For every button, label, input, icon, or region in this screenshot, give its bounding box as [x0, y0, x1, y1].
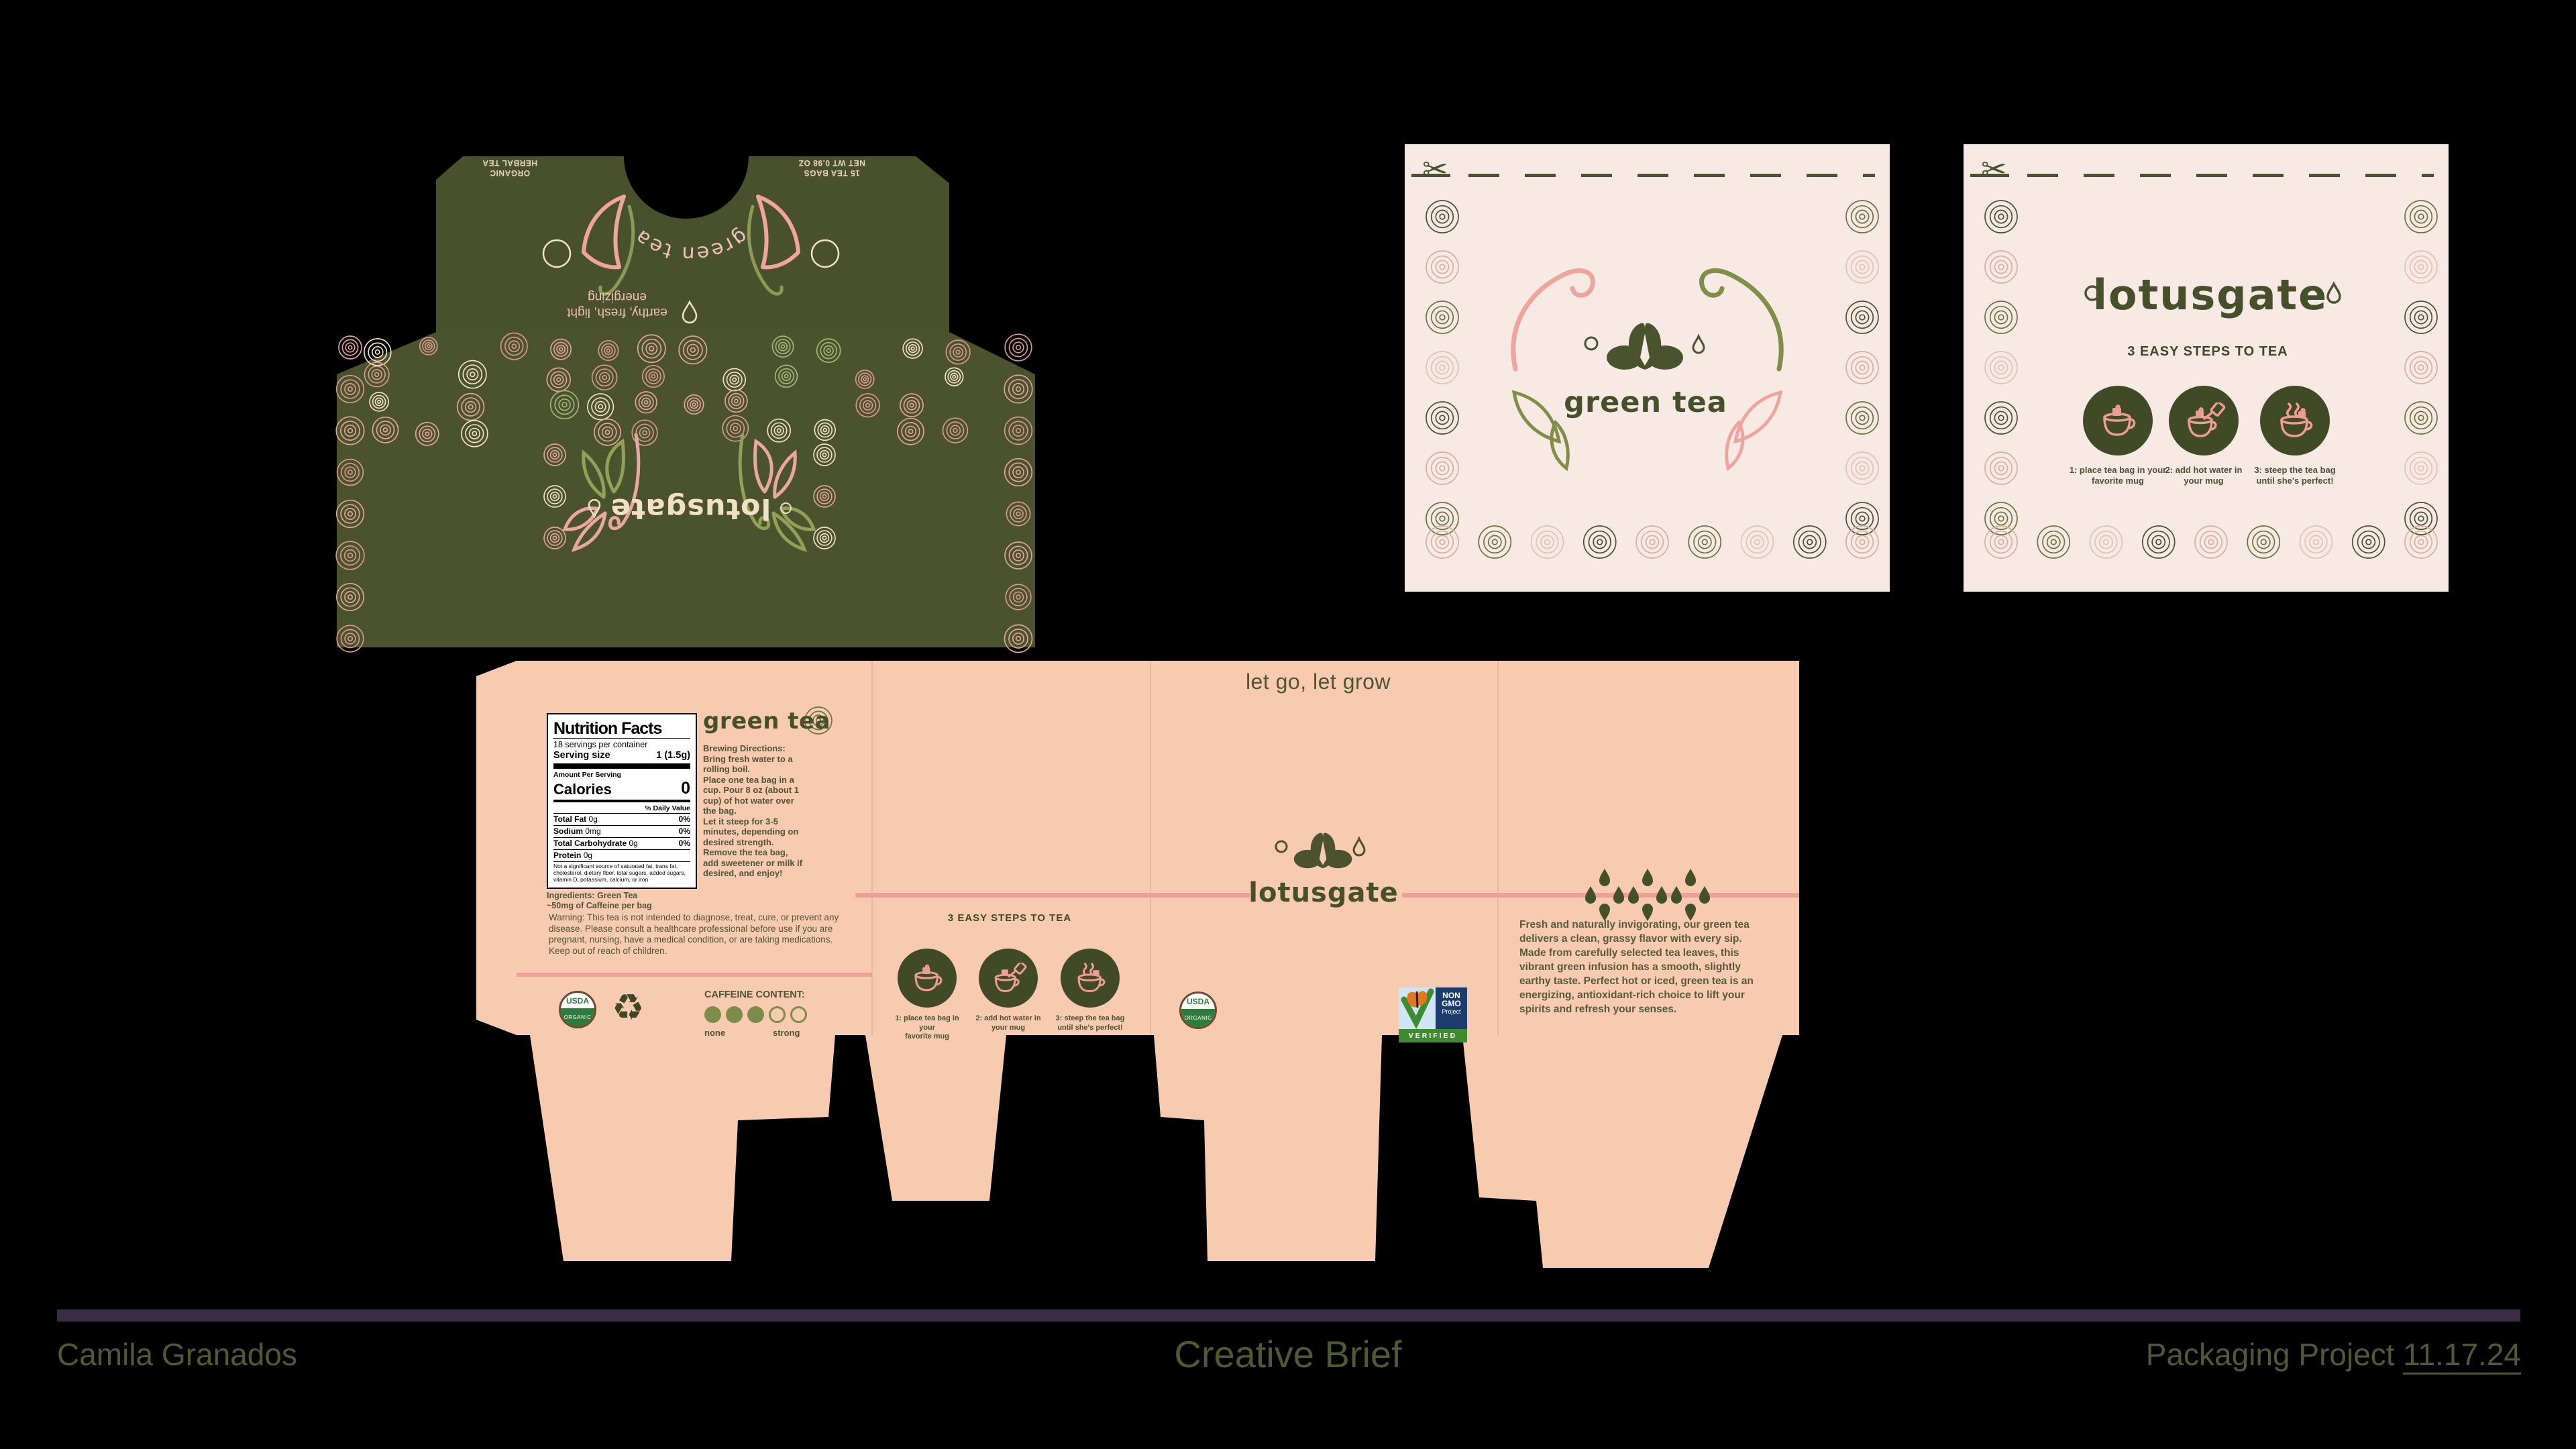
- nf-row-dv: 0%: [679, 814, 690, 824]
- step2-caption: 2: add hot water in your mug: [2153, 465, 2254, 486]
- caffeine-max-label: strong: [773, 1028, 800, 1038]
- back-panel-ornaments: [1964, 144, 2449, 592]
- caffeine-dot: [726, 1006, 743, 1023]
- nf-row-amount: 0g: [629, 839, 637, 848]
- back-panel: ✂ lotusgate 3 EASY STEPS TO TEA: [1964, 144, 2449, 592]
- caffeine-dot: [790, 1006, 807, 1023]
- warning-text: Warning: This tea is not intended to dia…: [549, 912, 841, 957]
- green-box-logo: lotusgate: [610, 492, 771, 525]
- nf-row-amount: 0mg: [585, 826, 600, 836]
- nf-dv-label: % Daily Value: [553, 804, 690, 814]
- caffeine-label: CAFFEINE CONTENT:: [704, 989, 805, 1000]
- bottom-flap-2: [865, 1035, 1006, 1201]
- nf-serving-size-value: 1 (1.5g): [656, 750, 690, 761]
- project-label: Packaging Project 11.17.24: [2146, 1336, 2521, 1373]
- back-panel-logo: lotusgate: [2049, 270, 2371, 319]
- caffeine-meter: [704, 1006, 812, 1026]
- caffeine-dot: [704, 1006, 721, 1023]
- bottom-flap-4: [1462, 1035, 1782, 1268]
- green-swirl: [1701, 270, 1781, 369]
- step3-icon-circle: [2260, 386, 2330, 455]
- droplet-icon: [588, 499, 601, 518]
- cut-line: [1468, 174, 1875, 177]
- bottom-flap-1: [530, 1035, 835, 1261]
- steps-heading: 3 EASY STEPS TO TEA: [902, 912, 1117, 924]
- nf-row-dv: 0%: [679, 839, 690, 849]
- non-gmo-verified-badge: NON GMO Project VERIFIED: [1399, 987, 1467, 1042]
- step3-caption: 3: steep the tea bag until she's perfect…: [2245, 465, 2345, 486]
- nf-footnote: Not a significant source of saturated fa…: [553, 863, 690, 883]
- cut-line: [2027, 174, 2434, 177]
- project-date: 11.17.24: [2403, 1337, 2521, 1375]
- rule-left: [855, 893, 1250, 898]
- peach-brand: green tea: [703, 708, 830, 735]
- nf-row-dv: 0%: [679, 826, 690, 837]
- green-box-logo-row: lotusgate: [569, 488, 810, 529]
- glue-flap: [476, 661, 517, 1035]
- non-gmo-text: Project: [1436, 1008, 1467, 1016]
- organic-label: ORGANIC: [1181, 1009, 1215, 1027]
- front-panel-ornaments: [1405, 144, 1890, 592]
- green-box-flap-right-text: 15 TEA BAGS NET WT 0.98 OZ: [748, 158, 916, 178]
- caffeine-min-label: none: [704, 1028, 725, 1038]
- circle-glyph: [780, 503, 792, 515]
- nf-row-amount: 0g: [588, 814, 597, 824]
- usda-label: USDA: [1181, 994, 1215, 1009]
- green-box-tagline: earthy, fresh, light energizing: [540, 289, 694, 320]
- nutrition-facts-label: Nutrition Facts 18 servings per containe…: [547, 713, 697, 889]
- creative-brief-board: green tea: [0, 0, 2576, 1449]
- brewing-title: Brewing Directions:: [703, 743, 824, 754]
- nf-row-amount: 0g: [584, 851, 592, 860]
- green-dieline-art: green tea: [319, 153, 1057, 663]
- peach-box-dieline: let go, let grow Nutrition Facts 18 serv…: [470, 644, 1811, 1288]
- step2-icon-circle: [2169, 386, 2239, 455]
- slogan: let go, let grow: [1184, 669, 1452, 694]
- recycle-icon: ♻: [612, 989, 644, 1026]
- organic-label: ORGANIC: [561, 1008, 594, 1026]
- front-panel: ✂ green tea: [1405, 144, 1890, 592]
- brewing-body: Bring fresh water to a rolling boil. Pla…: [703, 754, 824, 879]
- peach-logo: lotusgate: [1203, 877, 1444, 908]
- scissors-icon: ✂: [1981, 154, 2007, 184]
- pink-swirl: [1513, 270, 1593, 369]
- usda-organic-badge: USDA ORGANIC: [1179, 991, 1217, 1029]
- rule-right: [1402, 893, 1799, 898]
- caffeine-note: ~50mg of Caffeine per bag: [547, 901, 652, 911]
- step3-caption: 3: steep the tea bag until she's perfect…: [1050, 1014, 1130, 1032]
- nf-amount-label: Amount Per Serving: [553, 771, 690, 779]
- nf-title: Nutrition Facts: [553, 719, 690, 739]
- non-gmo-text: GMO: [1436, 1000, 1467, 1008]
- usda-organic-badge: USDA ORGANIC: [559, 991, 596, 1028]
- usda-label: USDA: [561, 993, 594, 1008]
- steps-heading: 3 EASY STEPS TO TEA: [2074, 344, 2342, 360]
- step1-icon-circle: [2083, 386, 2153, 455]
- scissors-icon: ✂: [1422, 154, 1448, 184]
- divider: [517, 973, 872, 977]
- nf-row-name: Total Fat: [553, 814, 586, 824]
- caffeine-dot: [747, 1006, 764, 1023]
- nf-row-name: Sodium: [553, 826, 583, 836]
- nf-serving-size-label: Serving size: [553, 750, 610, 761]
- step2-caption: 2: add hot water in your mug: [968, 1014, 1049, 1032]
- nf-calories-label: Calories: [553, 781, 612, 798]
- butterfly-leaf-art: [1399, 987, 1436, 1029]
- front-panel-brand: green tea: [1525, 386, 1766, 419]
- nf-servings: 18 servings per container: [553, 740, 690, 750]
- product-description: Fresh and naturally invigorating, our gr…: [1519, 918, 1769, 1016]
- green-box-flap-left-text: ORGANIC HERBAL TEA: [446, 158, 574, 178]
- teacup-pour-icon: [2182, 402, 2226, 439]
- green-box-dieline: green tea: [319, 153, 1057, 663]
- bottom-flap-3: [1154, 1035, 1382, 1261]
- nf-calories-value: 0: [681, 779, 690, 798]
- verified-label: VERIFIED: [1399, 1029, 1467, 1042]
- project-name: Packaging Project: [2146, 1337, 2395, 1372]
- caffeine-dot: [769, 1006, 786, 1023]
- step1-caption: 1: place tea bag in your favorite mug: [887, 1014, 967, 1042]
- step1-icon-circle: [898, 949, 957, 1008]
- teacup-teabag-icon: [2096, 402, 2140, 439]
- step3-icon-circle: [1061, 949, 1120, 1008]
- circle-glyph: [1585, 337, 1597, 350]
- nf-row-name: Protein: [553, 851, 581, 860]
- nf-row-name: Total Carbohydrate: [553, 839, 627, 848]
- droplet-icon: [1693, 336, 1704, 353]
- lotus-logo: [1607, 323, 1683, 370]
- teacup-steam-icon: [2273, 402, 2317, 439]
- footer-rule: [57, 1309, 2520, 1322]
- step2-icon-circle: [979, 949, 1038, 1008]
- ingredients: Ingredients: Green Tea: [547, 891, 652, 901]
